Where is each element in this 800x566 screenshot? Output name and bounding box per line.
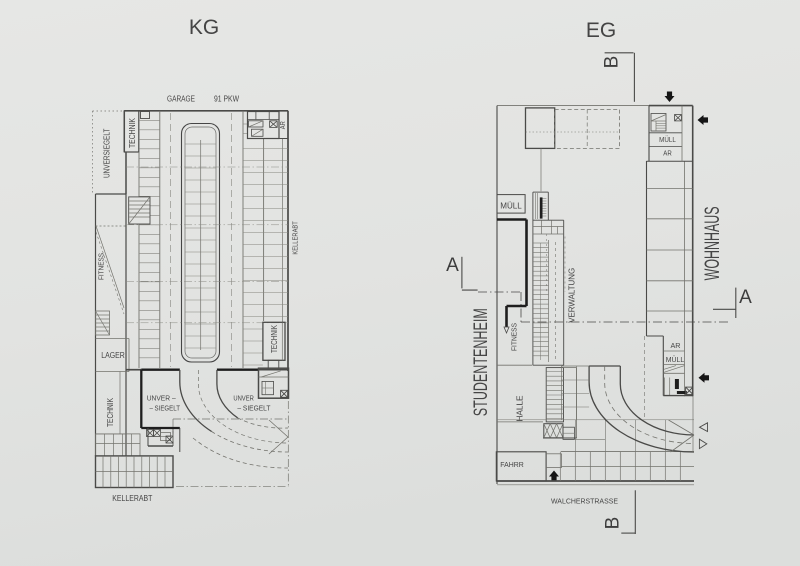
svg-text:VERWALTUNG: VERWALTUNG (568, 268, 577, 323)
svg-text:A: A (446, 255, 459, 276)
svg-text:MÜLL: MÜLL (666, 355, 685, 364)
svg-text:FAHRR: FAHRR (500, 460, 524, 469)
svg-text:HALLE: HALLE (516, 396, 525, 422)
svg-text:– SIEGELT: – SIEGELT (237, 403, 270, 412)
svg-text:TECHNIK: TECHNIK (128, 117, 137, 148)
svg-text:FITNESS: FITNESS (512, 323, 519, 351)
svg-text:MÜLL: MÜLL (659, 136, 676, 144)
svg-text:KELLERABT: KELLERABT (291, 221, 300, 255)
svg-text:UNVERSIEGELT: UNVERSIEGELT (102, 128, 111, 178)
svg-text:91 PKW: 91 PKW (214, 95, 239, 104)
svg-text:EG: EG (586, 19, 616, 42)
svg-text:WOHNHAUS: WOHNHAUS (701, 206, 724, 280)
svg-text:A: A (739, 287, 752, 308)
svg-text:B: B (602, 56, 623, 69)
svg-text:FITNESS: FITNESS (97, 253, 106, 280)
svg-text:LAGER: LAGER (101, 351, 125, 360)
svg-text:STUDENTENHEIM: STUDENTENHEIM (470, 308, 492, 416)
svg-text:– SIEGELT: – SIEGELT (149, 403, 180, 412)
svg-text:UNVER: UNVER (233, 394, 254, 403)
svg-text:MÜLL: MÜLL (500, 202, 522, 211)
svg-text:KELLERABT: KELLERABT (112, 494, 152, 503)
svg-text:KG: KG (189, 16, 219, 39)
svg-text:WALCHERSTRASSE: WALCHERSTRASSE (551, 496, 618, 505)
svg-text:TECHNIK: TECHNIK (270, 324, 279, 353)
svg-text:UNVER –: UNVER – (147, 394, 177, 403)
svg-text:AR: AR (280, 121, 287, 129)
svg-text:TECHNIK: TECHNIK (106, 397, 115, 427)
svg-text:AR: AR (671, 343, 681, 350)
svg-text:AR: AR (663, 151, 672, 158)
svg-text:GARAGE: GARAGE (167, 95, 195, 104)
svg-text:B: B (602, 517, 623, 530)
